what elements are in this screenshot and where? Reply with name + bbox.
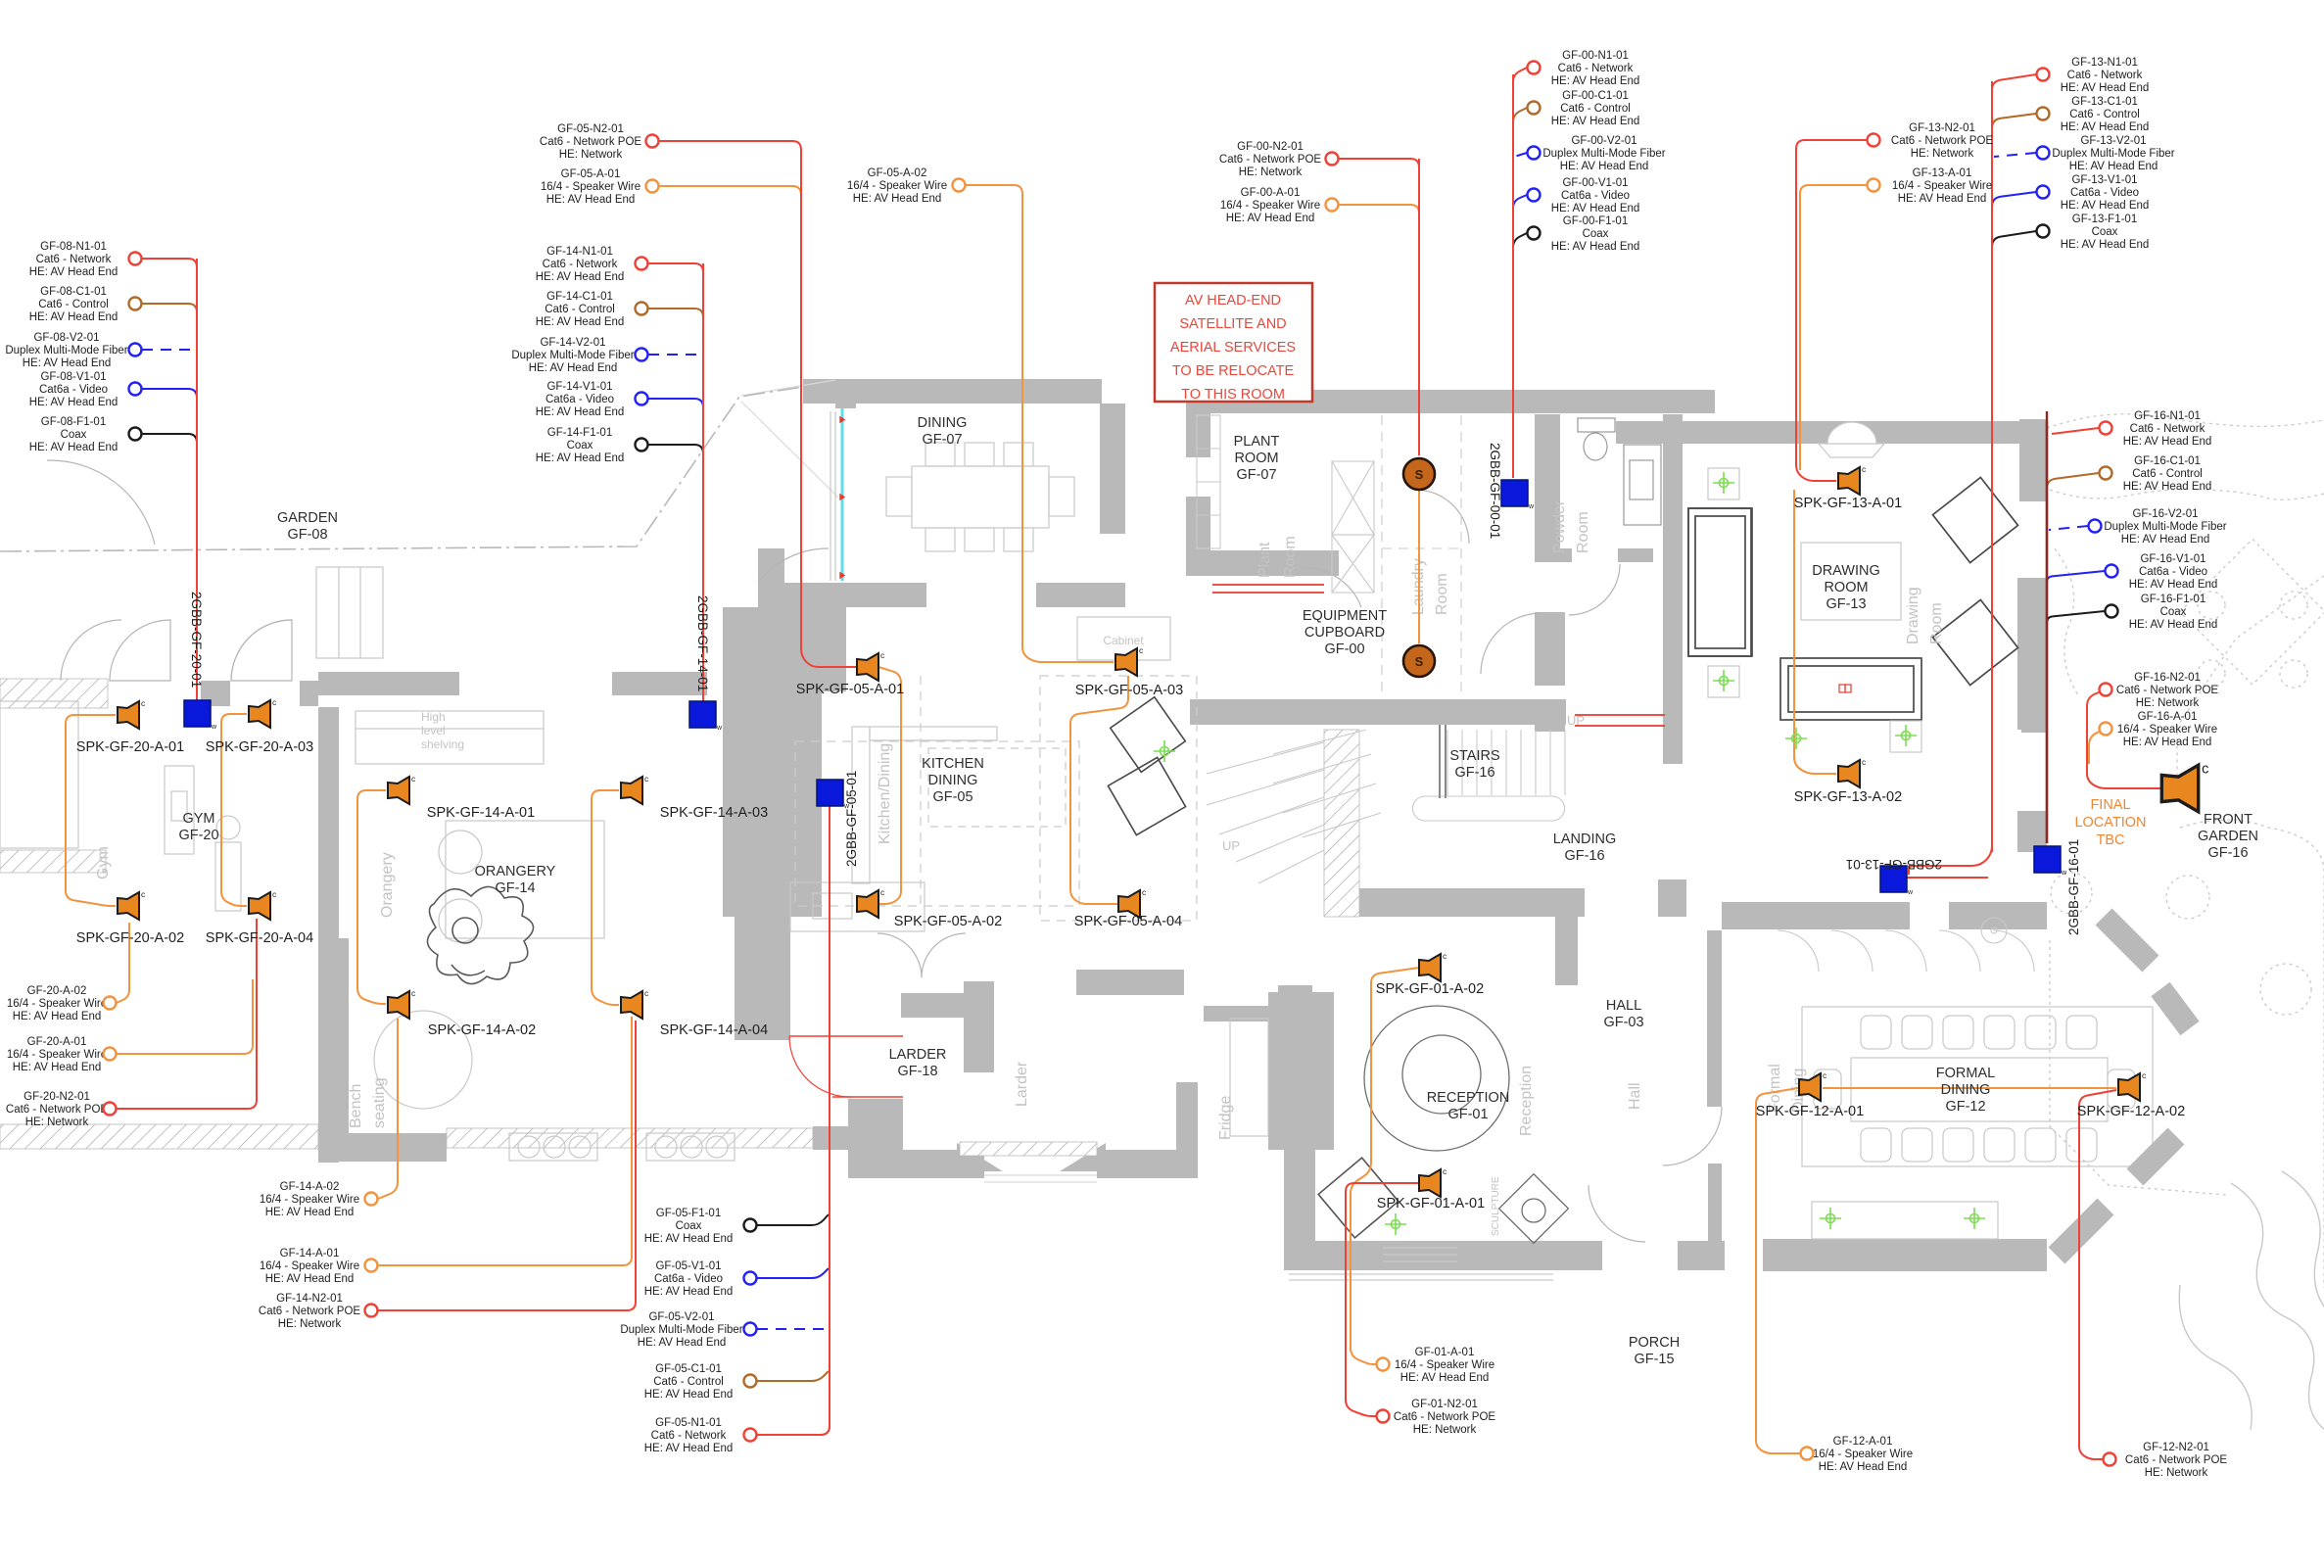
svg-text:Coax: Coax [1583, 228, 1609, 240]
svg-text:FRONT: FRONT [2204, 812, 2253, 828]
svg-text:GF-16-V1-01: GF-16-V1-01 [2140, 553, 2205, 565]
svg-text:HE: AV Head End: HE: AV Head End [2129, 579, 2218, 591]
svg-text:16/4 - Speaker Wire: 16/4 - Speaker Wire [1220, 200, 1320, 212]
svg-text:HALL: HALL [1606, 998, 1641, 1014]
svg-text:AV HEAD-END: AV HEAD-END [1185, 293, 1281, 309]
svg-text:SPK-GF-20-A-02: SPK-GF-20-A-02 [76, 930, 184, 946]
svg-text:Cat6a - Video: Cat6a - Video [39, 384, 108, 396]
svg-text:Cat6a - Video: Cat6a - Video [2139, 566, 2207, 578]
svg-text:S: S [1415, 654, 1424, 669]
svg-text:Cat6 - Network: Cat6 - Network [2130, 423, 2205, 435]
svg-text:HE: AV Head End: HE: AV Head End [13, 1062, 102, 1073]
svg-text:GF-08-N1-01: GF-08-N1-01 [40, 241, 107, 253]
svg-text:SPK-GF-20-A-04: SPK-GF-20-A-04 [206, 930, 313, 946]
svg-text:GF-00: GF-00 [1324, 641, 1364, 657]
svg-text:HE: AV Head End: HE: AV Head End [1560, 161, 1649, 172]
svg-text:c: c [2202, 762, 2208, 778]
svg-text:16/4 - Speaker Wire: 16/4 - Speaker Wire [7, 998, 107, 1010]
svg-text:Cat6 - Network: Cat6 - Network [36, 254, 112, 265]
svg-text:GF-14-V2-01: GF-14-V2-01 [540, 337, 605, 349]
svg-text:GYM: GYM [182, 811, 214, 827]
svg-text:S: S [1415, 467, 1424, 482]
svg-text:HE: AV Head End: HE: AV Head End [546, 194, 636, 206]
svg-text:LANDING: LANDING [1553, 832, 1616, 847]
svg-text:GF-05-A-02: GF-05-A-02 [868, 167, 927, 179]
svg-text:GF-16-F1-01: GF-16-F1-01 [2141, 594, 2205, 605]
svg-text:SPK-GF-20-A-01: SPK-GF-20-A-01 [76, 739, 184, 755]
svg-text:HE: AV Head End: HE: AV Head End [265, 1207, 355, 1218]
svg-text:HE: AV Head End: HE: AV Head End [29, 311, 119, 323]
svg-text:Fridge: Fridge [1217, 1096, 1234, 1140]
svg-text:SPK-GF-14-A-04: SPK-GF-14-A-04 [660, 1022, 768, 1038]
svg-text:seating: seating [371, 1077, 388, 1128]
svg-text:Cat6 - Control: Cat6 - Control [2069, 109, 2140, 120]
svg-text:HE: AV Head End: HE: AV Head End [29, 266, 119, 278]
svg-text:GF-05-F1-01: GF-05-F1-01 [656, 1208, 721, 1219]
svg-text:GF-08-F1-01: GF-08-F1-01 [41, 416, 106, 428]
svg-text:16/4 - Speaker Wire: 16/4 - Speaker Wire [260, 1260, 359, 1272]
svg-text:HE: AV Head End: HE: AV Head End [536, 406, 625, 418]
svg-text:HE: AV Head End: HE: AV Head End [1898, 193, 1987, 205]
svg-text:HE: AV Head End: HE: AV Head End [2123, 481, 2212, 493]
svg-text:GF-12-A-01: GF-12-A-01 [1833, 1436, 1893, 1448]
svg-text:Cat6 - Control: Cat6 - Control [545, 304, 615, 315]
svg-text:GF-13: GF-13 [1826, 596, 1866, 612]
svg-text:Room: Room [1434, 573, 1450, 615]
svg-text:DINING: DINING [1941, 1082, 1991, 1098]
svg-text:GARDEN: GARDEN [2198, 829, 2258, 844]
svg-text:HE: AV Head End: HE: AV Head End [638, 1337, 727, 1349]
svg-text:GF-00-N2-01: GF-00-N2-01 [1237, 141, 1304, 153]
svg-text:DINING: DINING [918, 415, 968, 431]
svg-text:Larder: Larder [1014, 1061, 1030, 1107]
svg-text:Cat6 - Network: Cat6 - Network [1558, 63, 1634, 74]
svg-text:LOCATION: LOCATION [2074, 815, 2146, 831]
svg-text:16/4 - Speaker Wire: 16/4 - Speaker Wire [1813, 1449, 1913, 1460]
svg-text:2GBB-GF-00-01: 2GBB-GF-00-01 [1488, 443, 1502, 539]
svg-text:HE: AV Head End: HE: AV Head End [265, 1273, 355, 1285]
svg-text:SPK-GF-01-A-01: SPK-GF-01-A-01 [1377, 1196, 1485, 1212]
svg-text:Cat6 - Network POE: Cat6 - Network POE [1219, 154, 1321, 166]
svg-text:2GBB-GF-05-01: 2GBB-GF-05-01 [844, 771, 859, 867]
svg-text:GF-14-A-01: GF-14-A-01 [280, 1248, 340, 1259]
svg-text:HE: Network: HE: Network [559, 149, 623, 161]
svg-text:GF-16: GF-16 [2207, 845, 2248, 861]
svg-text:HE: AV Head End: HE: AV Head End [1400, 1372, 1490, 1384]
svg-text:GF-08-C1-01: GF-08-C1-01 [40, 286, 107, 298]
svg-text:GF-05: GF-05 [932, 789, 972, 805]
svg-text:Duplex Multi-Mode Fiber: Duplex Multi-Mode Fiber [2104, 521, 2226, 533]
svg-text:GF-07: GF-07 [922, 432, 962, 448]
svg-text:Cat6 - Network POE: Cat6 - Network POE [540, 136, 641, 148]
svg-text:Room: Room [1282, 536, 1299, 578]
svg-text:GF-16-C1-01: GF-16-C1-01 [2134, 455, 2201, 467]
svg-text:TBC: TBC [2097, 832, 2125, 848]
svg-text:GF-14-N2-01: GF-14-N2-01 [276, 1293, 343, 1305]
svg-text:GF-00-V2-01: GF-00-V2-01 [1571, 135, 1636, 147]
svg-text:HE: AV Head End: HE: AV Head End [29, 397, 119, 408]
svg-text:GF-20: GF-20 [178, 828, 218, 843]
svg-text:STAIRS: STAIRS [1449, 748, 1499, 764]
svg-text:level: level [421, 724, 446, 737]
svg-text:shelving: shelving [421, 737, 464, 751]
svg-text:16/4 - Speaker Wire: 16/4 - Speaker Wire [7, 1049, 107, 1061]
svg-text:Duplex Multi-Mode Fiber: Duplex Multi-Mode Fiber [620, 1324, 742, 1336]
svg-text:SATELLITE AND: SATELLITE AND [1179, 316, 1286, 332]
svg-text:Cat6 - Network POE: Cat6 - Network POE [259, 1306, 360, 1317]
svg-text:SPK-GF-20-A-03: SPK-GF-20-A-03 [206, 739, 313, 755]
svg-text:SPK-GF-13-A-01: SPK-GF-13-A-01 [1794, 496, 1902, 511]
svg-text:GF-13-V2-01: GF-13-V2-01 [2080, 135, 2146, 147]
svg-text:Kitchen/Dining: Kitchen/Dining [877, 743, 893, 844]
svg-text:HE: AV Head End: HE: AV Head End [29, 442, 119, 453]
svg-text:Powder: Powder [1551, 499, 1568, 553]
svg-text:GF-16: GF-16 [1564, 848, 1604, 864]
svg-text:GF-16-V2-01: GF-16-V2-01 [2132, 508, 2198, 520]
svg-text:SPK-GF-05-A-04: SPK-GF-05-A-04 [1074, 914, 1182, 929]
svg-text:HE: AV Head End: HE: AV Head End [1551, 116, 1640, 127]
svg-text:HE: AV Head End: HE: AV Head End [2123, 736, 2212, 748]
svg-text:Orangery: Orangery [379, 852, 396, 918]
svg-text:Cat6 - Network POE: Cat6 - Network POE [2116, 685, 2218, 696]
svg-text:Hall: Hall [1627, 1082, 1643, 1110]
svg-text:GF-05-C1-01: GF-05-C1-01 [655, 1363, 722, 1375]
svg-text:Cat6a - Video: Cat6a - Video [545, 394, 614, 405]
svg-text:HE: AV Head End: HE: AV Head End [2061, 200, 2150, 212]
svg-text:Cat6 - Network POE: Cat6 - Network POE [2125, 1454, 2227, 1466]
svg-text:Cat6 - Control: Cat6 - Control [38, 299, 109, 310]
svg-text:ROOM: ROOM [1234, 451, 1278, 466]
svg-text:w: w [1907, 889, 1914, 896]
svg-text:GF-15: GF-15 [1634, 1352, 1674, 1367]
svg-text:w: w [1528, 503, 1535, 510]
svg-text:Cat6 - Network POE: Cat6 - Network POE [6, 1104, 108, 1116]
svg-text:High: High [421, 710, 446, 724]
svg-text:HE: AV Head End: HE: AV Head End [2129, 619, 2218, 631]
svg-text:SCULPTURE: SCULPTURE [1491, 1176, 1501, 1236]
svg-text:FORMAL: FORMAL [1936, 1066, 1995, 1081]
svg-text:SPK-GF-13-A-02: SPK-GF-13-A-02 [1794, 789, 1902, 805]
svg-text:Duplex Multi-Mode Fiber: Duplex Multi-Mode Fiber [511, 350, 634, 361]
svg-text:HE: AV Head End: HE: AV Head End [23, 357, 112, 369]
svg-text:ROOM: ROOM [1824, 580, 1868, 595]
svg-text:Cat6a - Video: Cat6a - Video [654, 1273, 723, 1285]
svg-text:2GBB-GF-16-01: 2GBB-GF-16-01 [2066, 839, 2081, 935]
svg-text:Coax: Coax [2092, 226, 2118, 238]
svg-text:GF-00-N1-01: GF-00-N1-01 [1562, 50, 1629, 62]
svg-text:Duplex Multi-Mode Fiber: Duplex Multi-Mode Fiber [5, 345, 127, 356]
svg-text:Cat6a - Video: Cat6a - Video [2070, 187, 2139, 199]
svg-text:Coax: Coax [61, 429, 87, 441]
svg-text:Cat6 - Control: Cat6 - Control [1560, 103, 1631, 115]
svg-text:HE: AV Head End: HE: AV Head End [536, 452, 625, 464]
svg-text:CUPBOARD: CUPBOARD [1304, 625, 1385, 641]
svg-text:EQUIPMENT: EQUIPMENT [1303, 608, 1387, 624]
svg-text:Cat6a - Video: Cat6a - Video [1561, 190, 1630, 202]
svg-text:16/4 - Speaker Wire: 16/4 - Speaker Wire [541, 181, 640, 193]
svg-text:LARDER: LARDER [889, 1047, 947, 1063]
svg-text:HE: AV Head End: HE: AV Head End [644, 1443, 734, 1454]
svg-text:GF-08-V2-01: GF-08-V2-01 [33, 332, 99, 344]
svg-text:KITCHEN: KITCHEN [922, 756, 984, 772]
svg-text:GF-05-A-01: GF-05-A-01 [561, 168, 621, 180]
svg-text:GF-13-N2-01: GF-13-N2-01 [1909, 122, 1975, 134]
svg-text:GF-13-N1-01: GF-13-N1-01 [2071, 57, 2138, 69]
svg-text:Cat6 - Network: Cat6 - Network [2067, 70, 2143, 81]
svg-text:HE: Network: HE: Network [1911, 148, 1974, 160]
svg-text:GF-20-N2-01: GF-20-N2-01 [24, 1091, 90, 1103]
svg-text:GF-20-A-02: GF-20-A-02 [27, 985, 87, 997]
svg-text:Cat6 - Network POE: Cat6 - Network POE [1394, 1411, 1495, 1423]
svg-text:w: w [211, 724, 217, 731]
svg-text:Cat6 - Control: Cat6 - Control [2132, 468, 2203, 480]
svg-text:GF-05-V2-01: GF-05-V2-01 [648, 1311, 714, 1323]
svg-text:Coax: Coax [2160, 606, 2187, 618]
svg-text:HE: AV Head End: HE: AV Head End [13, 1011, 102, 1022]
svg-text:GF-14-F1-01: GF-14-F1-01 [547, 427, 612, 439]
svg-text:Cat6 - Control: Cat6 - Control [653, 1376, 724, 1388]
svg-text:Gym: Gym [95, 846, 112, 879]
svg-text:HE: AV Head End: HE: AV Head End [536, 316, 625, 328]
svg-text:GF-00-V1-01: GF-00-V1-01 [1562, 177, 1628, 189]
svg-text:Cat6 - Network POE: Cat6 - Network POE [1891, 135, 1993, 147]
svg-text:GF-00-A-01: GF-00-A-01 [1241, 187, 1301, 199]
svg-text:DRAWING: DRAWING [1812, 563, 1880, 579]
svg-text:GF-05-N1-01: GF-05-N1-01 [655, 1417, 722, 1429]
svg-text:16/4 - Speaker Wire: 16/4 - Speaker Wire [1395, 1359, 1494, 1371]
svg-text:GF-12: GF-12 [1945, 1099, 1985, 1115]
svg-text:16/4 - Speaker Wire: 16/4 - Speaker Wire [260, 1194, 359, 1206]
svg-text:GF-18: GF-18 [897, 1064, 937, 1079]
svg-text:GARDEN: GARDEN [277, 510, 338, 526]
svg-text:Cat6 - Network: Cat6 - Network [651, 1430, 727, 1442]
svg-text:HE: AV Head End: HE: AV Head End [1551, 241, 1640, 253]
svg-text:GF-01-A-01: GF-01-A-01 [1415, 1347, 1475, 1358]
svg-text:GF-03: GF-03 [1603, 1015, 1643, 1030]
svg-text:AERIAL SERVICES: AERIAL SERVICES [1170, 340, 1296, 356]
svg-text:HE: AV Head End: HE: AV Head End [536, 271, 625, 283]
svg-text:GF-08: GF-08 [287, 527, 327, 543]
svg-text:GF-07: GF-07 [1236, 467, 1276, 483]
svg-text:GF-14: GF-14 [495, 880, 535, 896]
svg-text:Drawing: Drawing [1905, 587, 1921, 644]
svg-text:GF-01-N2-01: GF-01-N2-01 [1411, 1399, 1478, 1410]
svg-text:SPK-GF-12-A-02: SPK-GF-12-A-02 [2077, 1104, 2185, 1119]
svg-text:HE: AV Head End: HE: AV Head End [853, 193, 942, 205]
svg-text:HE: AV Head End: HE: AV Head End [644, 1389, 734, 1401]
svg-text:PLANT: PLANT [1234, 434, 1280, 450]
svg-text:GF-12-N2-01: GF-12-N2-01 [2143, 1442, 2209, 1453]
svg-text:TO THIS ROOM: TO THIS ROOM [1181, 387, 1285, 403]
svg-text:16/4 - Speaker Wire: 16/4 - Speaker Wire [2117, 724, 2217, 736]
svg-text:GF-14-C1-01: GF-14-C1-01 [546, 291, 613, 303]
svg-text:UP: UP [1222, 838, 1240, 853]
svg-text:FINAL: FINAL [2090, 797, 2130, 813]
svg-text:HE: AV Head End: HE: AV Head End [2061, 121, 2150, 133]
svg-text:GF-00-C1-01: GF-00-C1-01 [1562, 90, 1629, 102]
svg-text:GF-13-F1-01: GF-13-F1-01 [2072, 214, 2137, 225]
svg-text:HE: AV Head End: HE: AV Head End [1819, 1461, 1908, 1473]
svg-text:HE: AV Head End: HE: AV Head End [644, 1286, 734, 1298]
svg-text:Room: Room [1928, 602, 1945, 644]
svg-text:HE: AV Head End: HE: AV Head End [2061, 82, 2150, 94]
svg-text:HE: AV Head End: HE: AV Head End [1551, 203, 1640, 214]
svg-text:Duplex Multi-Mode Fiber: Duplex Multi-Mode Fiber [2052, 148, 2174, 160]
svg-text:Plant: Plant [1257, 542, 1273, 578]
svg-text:GF-05-N2-01: GF-05-N2-01 [557, 123, 624, 135]
svg-text:GF-05-V1-01: GF-05-V1-01 [655, 1260, 721, 1272]
svg-text:HE: Network: HE: Network [278, 1318, 342, 1330]
svg-text:GF-14-A-02: GF-14-A-02 [280, 1181, 340, 1193]
svg-text:Room: Room [1575, 511, 1591, 553]
svg-text:Coax: Coax [676, 1220, 702, 1232]
svg-text:Bench: Bench [348, 1084, 364, 1128]
svg-text:PORCH: PORCH [1629, 1335, 1680, 1351]
svg-text:GF-14-N1-01: GF-14-N1-01 [546, 246, 613, 258]
svg-text:HE: Network: HE: Network [1413, 1424, 1477, 1436]
svg-text:Cat6 - Network: Cat6 - Network [543, 259, 618, 270]
svg-text:TO BE RELOCATE: TO BE RELOCATE [1172, 363, 1295, 379]
svg-text:GF-13-C1-01: GF-13-C1-01 [2071, 96, 2138, 108]
svg-text:DINING: DINING [928, 773, 978, 788]
svg-text:HE: AV Head End: HE: AV Head End [2123, 436, 2212, 448]
svg-text:HE: AV Head End: HE: AV Head End [2061, 239, 2150, 251]
svg-text:16/4 - Speaker Wire: 16/4 - Speaker Wire [1892, 180, 1992, 192]
svg-text:HE: Network: HE: Network [1239, 166, 1303, 178]
svg-text:Reception: Reception [1518, 1066, 1535, 1136]
svg-text:GF-20-A-01: GF-20-A-01 [27, 1036, 87, 1048]
svg-text:ORANGERY: ORANGERY [475, 864, 556, 879]
svg-text:SPK-GF-05-A-01: SPK-GF-05-A-01 [796, 682, 904, 697]
svg-text:GF-00-F1-01: GF-00-F1-01 [1563, 215, 1628, 227]
svg-text:HE: AV Head End: HE: AV Head End [644, 1233, 734, 1245]
svg-text:SPK-GF-01-A-02: SPK-GF-01-A-02 [1376, 981, 1484, 997]
svg-text:GF-16: GF-16 [1454, 765, 1494, 781]
svg-text:2GBB-GF-14-01: 2GBB-GF-14-01 [695, 595, 710, 691]
svg-text:HE: AV Head End: HE: AV Head End [1226, 213, 1315, 224]
svg-text:HE: Network: HE: Network [2136, 697, 2200, 709]
svg-text:SPK-GF-12-A-01: SPK-GF-12-A-01 [1756, 1104, 1864, 1119]
svg-text:Coax: Coax [567, 440, 593, 451]
svg-text:HE: Network: HE: Network [25, 1117, 89, 1128]
svg-text:HE: AV Head End: HE: AV Head End [2121, 534, 2210, 546]
svg-text:w: w [716, 725, 723, 732]
svg-text:GF-14-V1-01: GF-14-V1-01 [546, 381, 612, 393]
svg-text:16/4 - Speaker Wire: 16/4 - Speaker Wire [847, 180, 947, 192]
svg-text:HE: Network: HE: Network [2145, 1467, 2208, 1479]
svg-text:SPK-GF-14-A-01: SPK-GF-14-A-01 [427, 805, 535, 821]
svg-text:GF-16-A-01: GF-16-A-01 [2138, 711, 2198, 723]
svg-text:HE: AV Head End: HE: AV Head End [2069, 161, 2158, 172]
svg-text:HE: AV Head End: HE: AV Head End [529, 362, 618, 374]
svg-text:SPK-GF-14-A-03: SPK-GF-14-A-03 [660, 805, 768, 821]
svg-text:SPK-GF-14-A-02: SPK-GF-14-A-02 [428, 1022, 536, 1038]
svg-text:GF-08-V1-01: GF-08-V1-01 [40, 371, 106, 383]
svg-text:SPK-GF-05-A-02: SPK-GF-05-A-02 [894, 914, 1002, 929]
svg-text:GF-01: GF-01 [1447, 1107, 1488, 1122]
svg-text:GF-13-V1-01: GF-13-V1-01 [2071, 174, 2137, 186]
svg-text:GF-13-A-01: GF-13-A-01 [1913, 167, 1972, 179]
svg-text:GF-16-N1-01: GF-16-N1-01 [2134, 410, 2201, 422]
svg-text:RECEPTION: RECEPTION [1427, 1090, 1510, 1106]
svg-text:GF-16-N2-01: GF-16-N2-01 [2134, 672, 2201, 684]
svg-text:HE: AV Head End: HE: AV Head End [1551, 75, 1640, 87]
svg-text:Duplex Multi-Mode Fiber: Duplex Multi-Mode Fiber [1542, 148, 1665, 160]
svg-text:SPK-GF-05-A-03: SPK-GF-05-A-03 [1075, 683, 1183, 698]
svg-text:2GBB-GF-13-01: 2GBB-GF-13-01 [1846, 857, 1942, 872]
svg-text:2GBB-GF-20-01: 2GBB-GF-20-01 [189, 592, 204, 688]
